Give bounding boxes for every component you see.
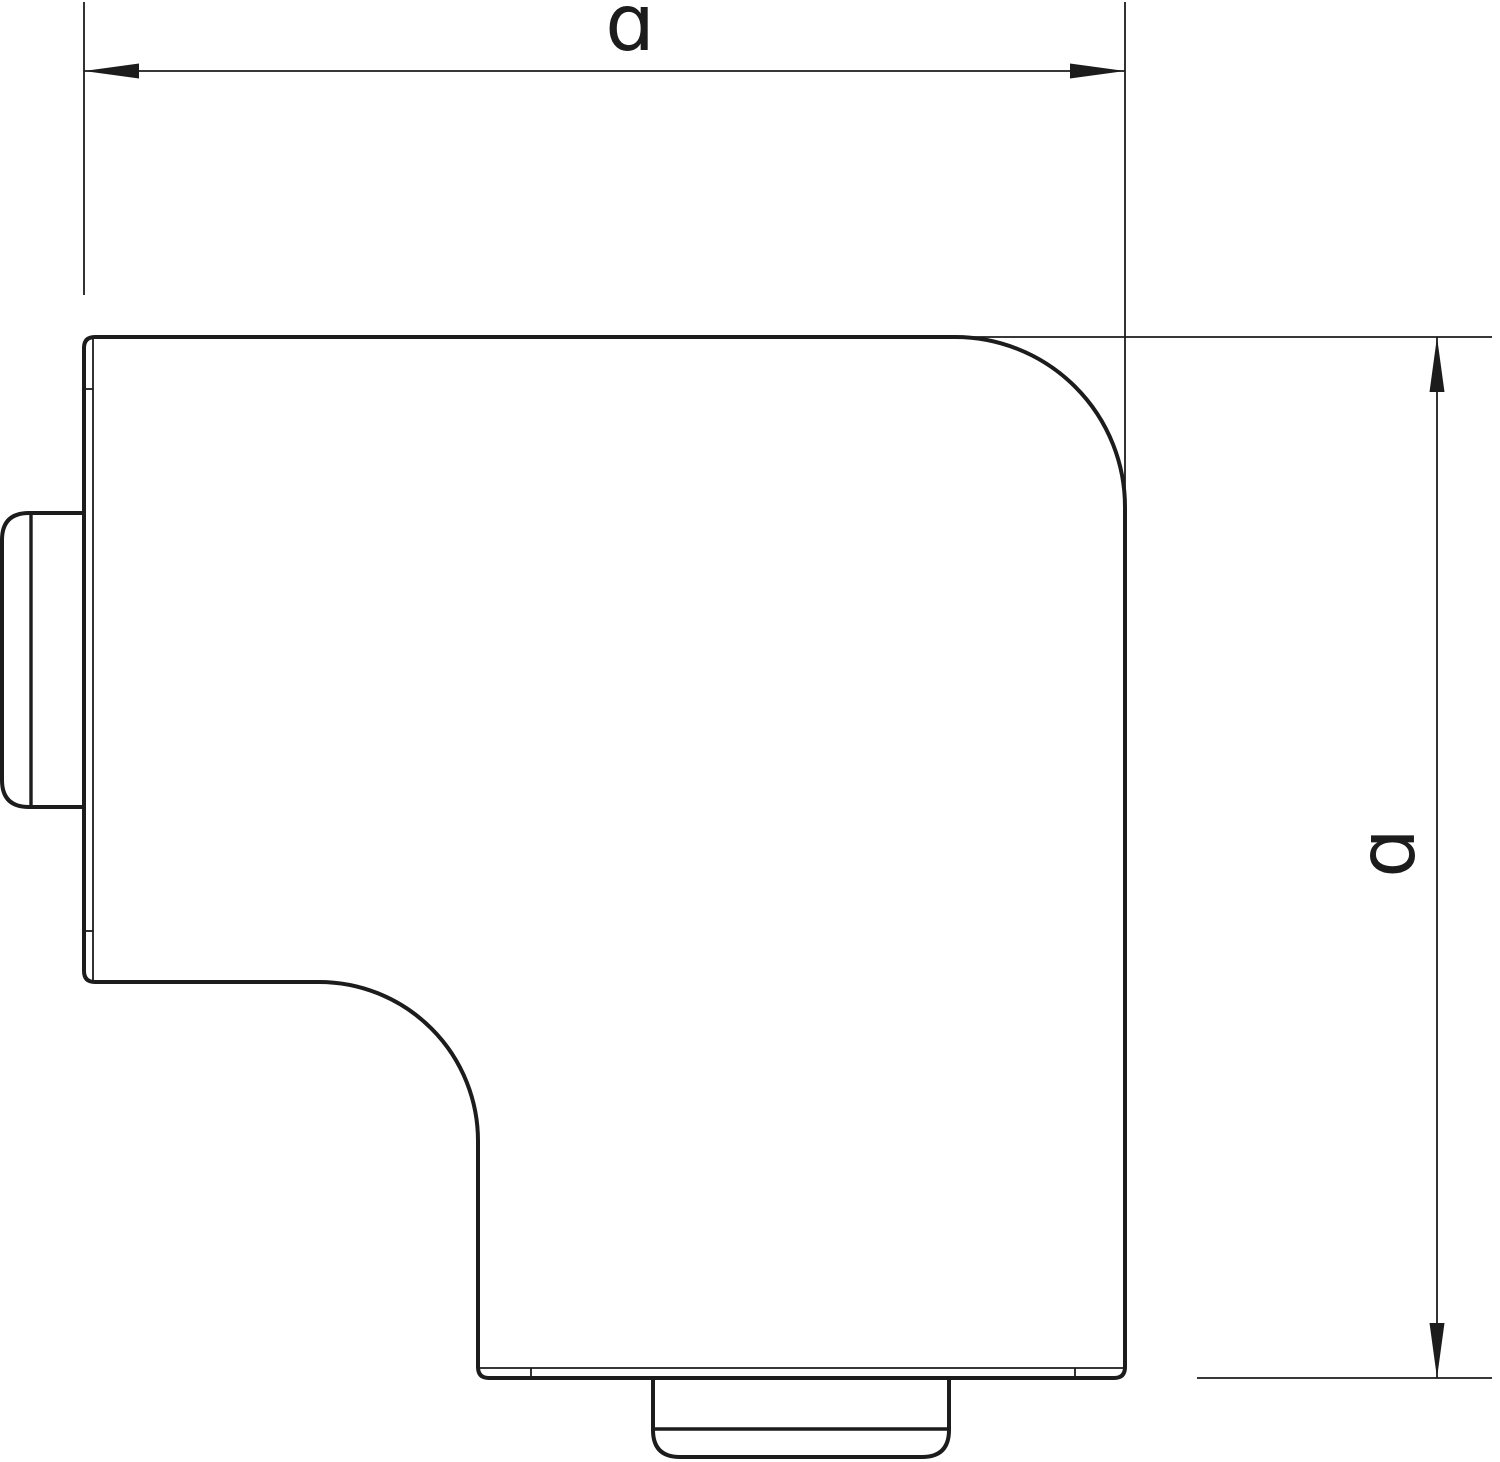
bottom-connector (653, 1378, 949, 1457)
height-arrowhead-top (1430, 337, 1445, 392)
technical-drawing-page: ɑ ɑ (0, 0, 1500, 1462)
body-outline (84, 337, 1125, 1378)
height-arrowhead-bottom (1430, 1323, 1445, 1378)
left-connector-cap-outline (2, 513, 84, 807)
height-dimension-label: ɑ (1343, 828, 1433, 878)
flat-angle-cover-drawing: ɑ ɑ (0, 0, 1500, 1462)
body (84, 337, 1125, 1378)
left-connector (2, 513, 84, 807)
bottom-connector-cap-outline (653, 1378, 949, 1457)
width-dimension-label: ɑ (605, 0, 655, 69)
width-arrowhead-right (1070, 64, 1125, 79)
width-arrowhead-left (84, 64, 139, 79)
